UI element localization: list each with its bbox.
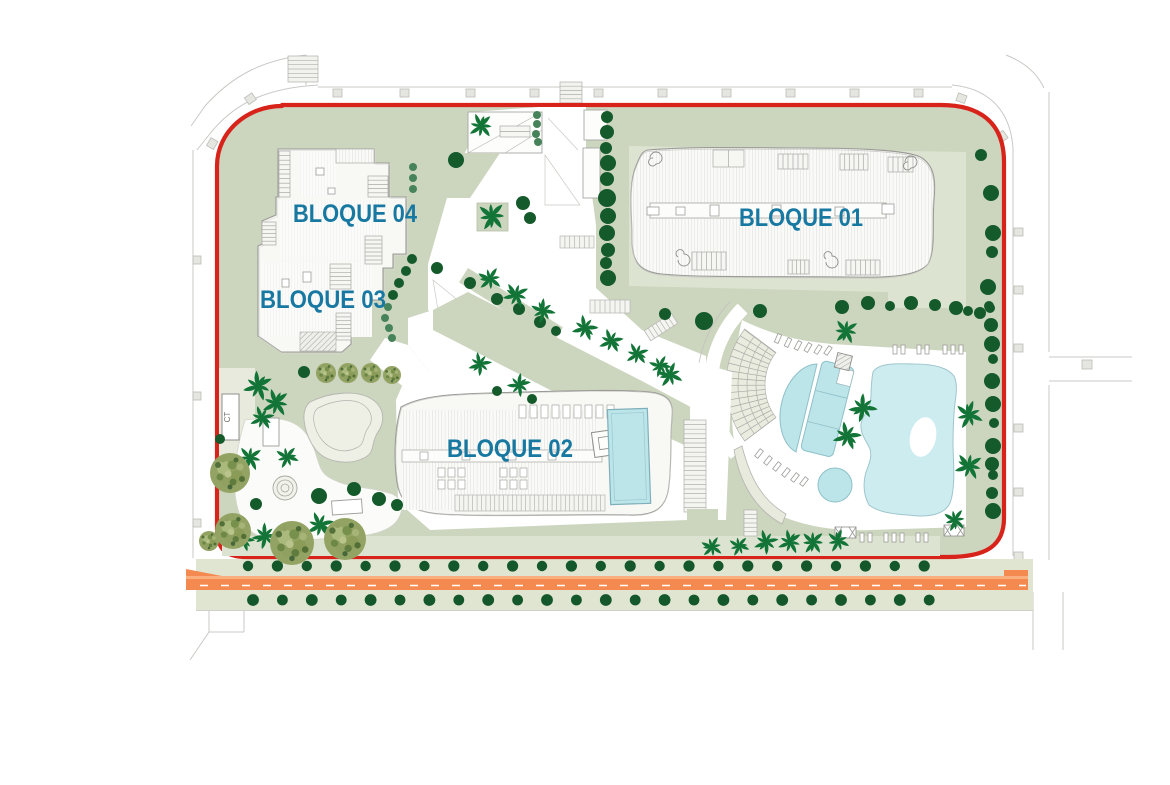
svg-text:BLOQUE 04: BLOQUE 04 [293,200,417,228]
svg-text:BLOQUE 03: BLOQUE 03 [260,286,386,314]
svg-text:CT: CT [223,412,232,423]
svg-text:BLOQUE 01: BLOQUE 01 [739,204,863,232]
svg-text:BLOQUE 02: BLOQUE 02 [447,435,573,463]
